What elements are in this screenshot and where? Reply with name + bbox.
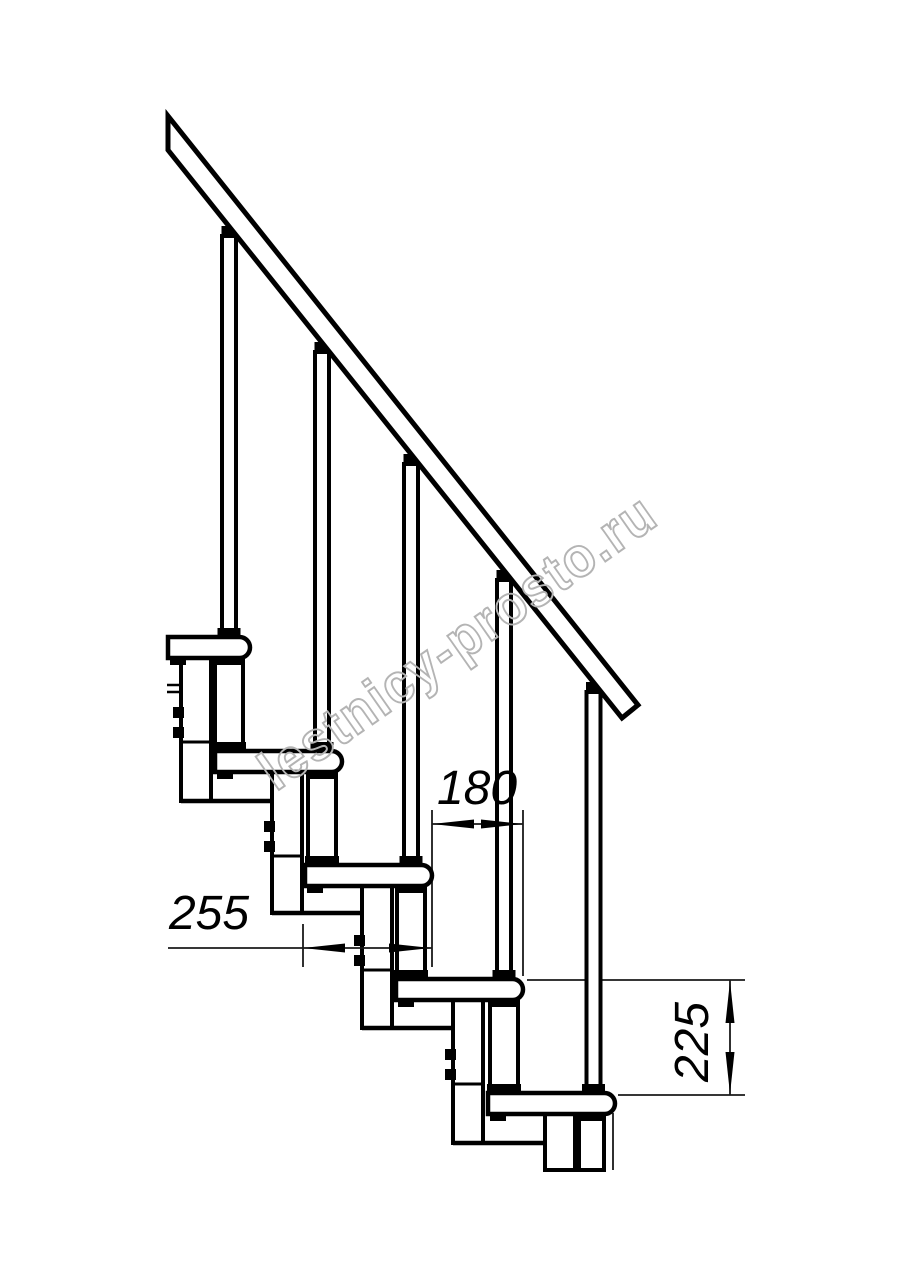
support-tube-3 — [397, 886, 425, 979]
baluster-base-collar — [493, 970, 516, 979]
column-5 — [545, 1113, 575, 1170]
tube-base-collar — [394, 970, 428, 979]
arrow-left-icon — [303, 944, 345, 953]
tube-base-collar — [487, 1084, 521, 1093]
support-tube-5 — [579, 1114, 604, 1170]
clamp-tab — [217, 772, 233, 779]
staircase-drawing: 255 180 225 lestnicy-prosto.ru — [0, 0, 914, 1280]
baluster-base-collar — [218, 628, 241, 637]
baluster-2 — [311, 342, 334, 751]
dimension-rise: 225 — [666, 980, 735, 1095]
clamp-tab — [398, 1000, 414, 1007]
bolt-tab — [264, 841, 275, 852]
bolt-tab — [173, 727, 184, 738]
bolt-tab — [445, 1049, 456, 1060]
baluster-body — [587, 692, 601, 1093]
bolt-tab — [354, 935, 365, 946]
baluster-body — [222, 236, 236, 637]
baluster-base-collar — [400, 856, 423, 865]
watermark-text: lestnicy-prosto.ru — [247, 481, 668, 802]
support-tube-2 — [308, 772, 336, 865]
clamp-tab — [170, 658, 186, 665]
baluster-body — [315, 352, 329, 751]
clipped-bracket — [167, 685, 181, 692]
dim-label-rise: 225 — [666, 1002, 719, 1083]
support-tube-4 — [490, 1000, 518, 1093]
clamp-tab — [307, 886, 323, 893]
baluster-5 — [582, 682, 605, 1093]
arrow-down-icon — [726, 1052, 735, 1094]
bolt-tab — [264, 821, 275, 832]
arrow-up-icon — [726, 981, 735, 1023]
clamp-tab — [490, 1114, 506, 1121]
bolt-tab — [354, 955, 365, 966]
support-tube-1 — [215, 658, 243, 751]
bolt-tab — [173, 707, 184, 718]
arrow-left-icon — [432, 820, 474, 829]
column-1 — [181, 658, 211, 801]
tube-base-collar — [305, 856, 339, 865]
baluster-1 — [218, 226, 241, 637]
column-3 — [362, 886, 392, 1028]
bolt-tab — [445, 1069, 456, 1080]
dim-label-run: 180 — [437, 762, 517, 815]
tube-base-collar — [212, 742, 246, 751]
baluster-base-collar — [582, 1084, 605, 1093]
column-4 — [453, 1000, 483, 1143]
tread-4 — [396, 979, 523, 1000]
tread-5 — [488, 1093, 615, 1114]
dim-label-tread-depth: 255 — [168, 887, 249, 940]
staircase-drawing-page: 255 180 225 lestnicy-prosto.ru — [0, 0, 914, 1280]
tread-1 — [168, 637, 250, 658]
tread-3 — [305, 865, 432, 886]
